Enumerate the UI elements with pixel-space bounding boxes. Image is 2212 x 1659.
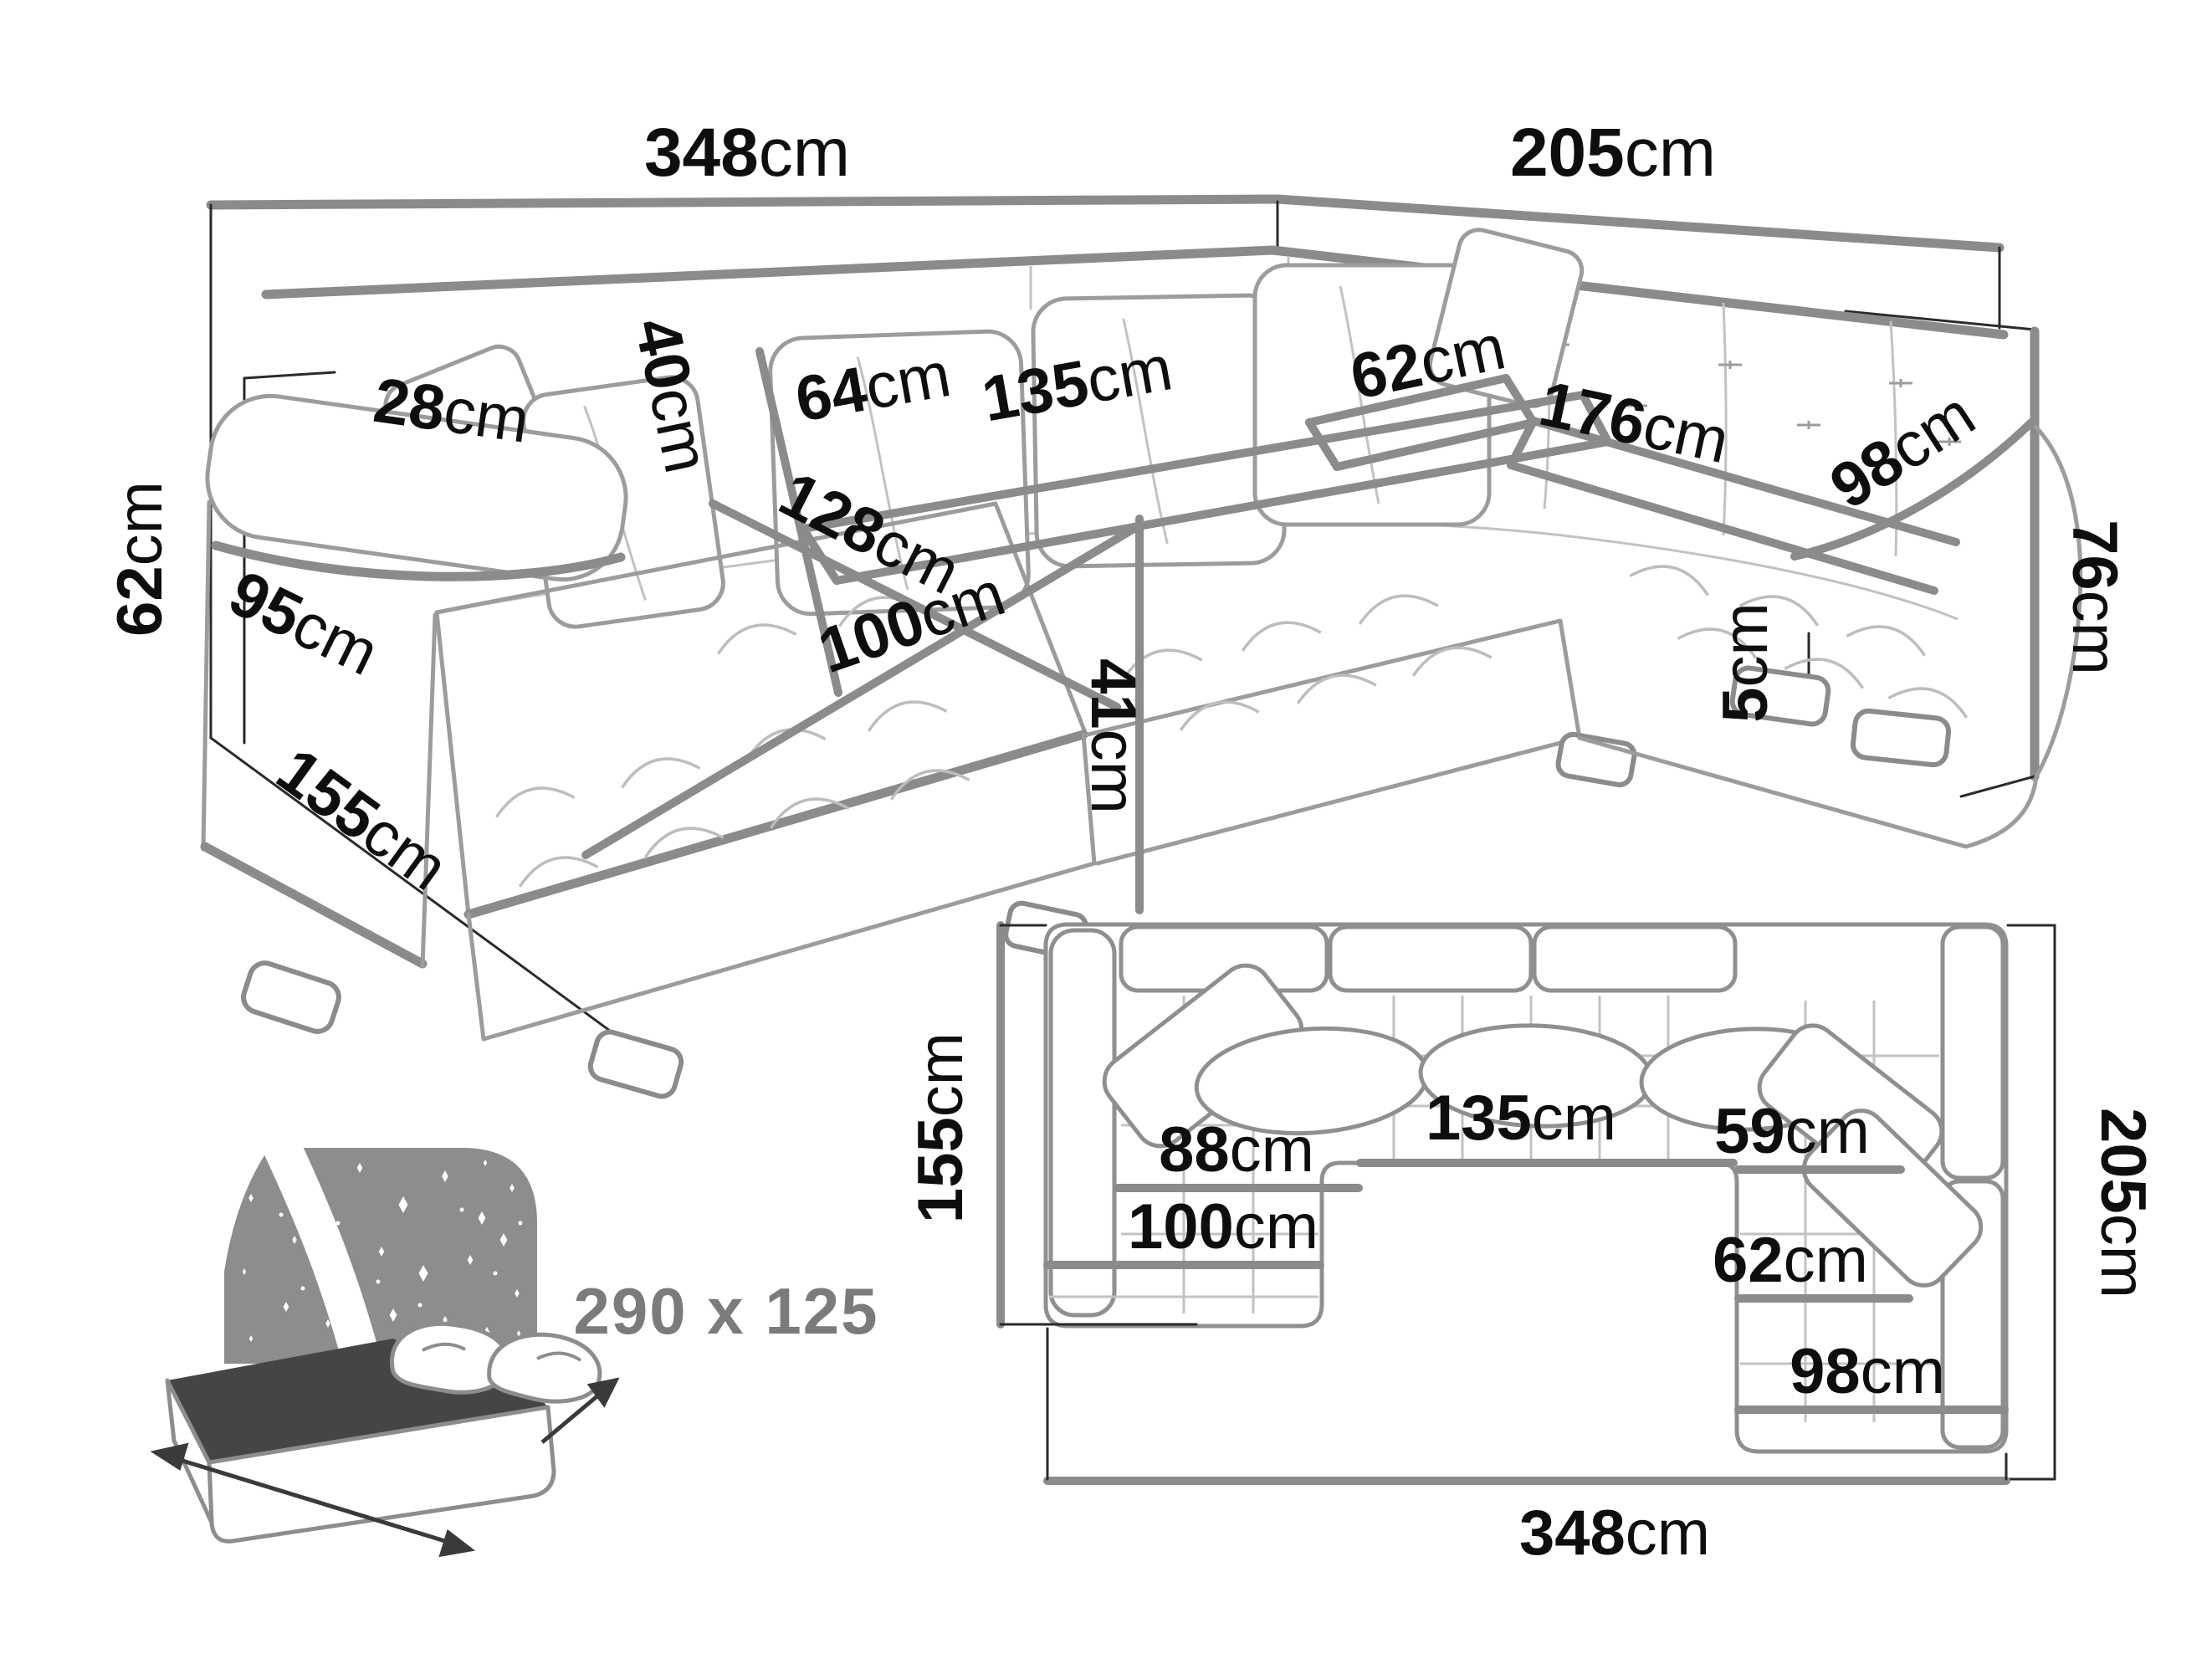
plan-total-width-label: 348cm: [1519, 1498, 1710, 1569]
plan-right-depth-label: 205cm: [2087, 1108, 2158, 1298]
middle-section: [1088, 588, 1636, 863]
sleeping-size-label: 290 x 125: [573, 1274, 878, 1348]
plan-left-depth-label: 155cm: [905, 1032, 976, 1223]
dim-seat-height-label: 41cm: [1078, 658, 1149, 814]
plan-right-seat-width-label: 62cm: [1713, 1225, 1868, 1296]
dim-backrest-height-label: 76cm: [2059, 520, 2130, 675]
dim-side-height-label: 62cm: [105, 481, 176, 637]
diagram-canvas: 348cm 205cm 40cm 28cm 64cm 135cm 62cm 95…: [0, 0, 2212, 1659]
right-section: [1580, 422, 2081, 847]
plan-chaise-width-label: 100cm: [1128, 1191, 1318, 1262]
plan-right-arm-width-label: 98cm: [1790, 1336, 1945, 1407]
plan-armrest: [1051, 930, 1114, 1315]
dim-right-seat-width-label: 98cm: [1818, 378, 1987, 523]
dim-right-seat-length-label: 176cm: [1534, 368, 1735, 478]
dim-right-depth-label: 205cm: [1510, 115, 1716, 191]
plan-view: 155cm 88cm 135cm 59cm 62cm 100cm 98cm 20…: [905, 924, 2158, 1569]
sofa-dimensions-diagram: 348cm 205cm 40cm 28cm 64cm 135cm 62cm 95…: [0, 0, 2212, 1659]
plan-right-seat-top-width-label: 59cm: [1714, 1096, 1870, 1167]
dim-total-width-label: 348cm: [644, 115, 850, 191]
dim-leg-height-label: 5cm: [1710, 602, 1781, 723]
plan-middle-seat-width-label: 135cm: [1426, 1083, 1616, 1154]
left-armrest: [200, 388, 634, 1035]
plan-left-seat-width-label: 88cm: [1159, 1114, 1314, 1185]
sleeping-function-icon: 290 x 125: [156, 1134, 879, 1554]
